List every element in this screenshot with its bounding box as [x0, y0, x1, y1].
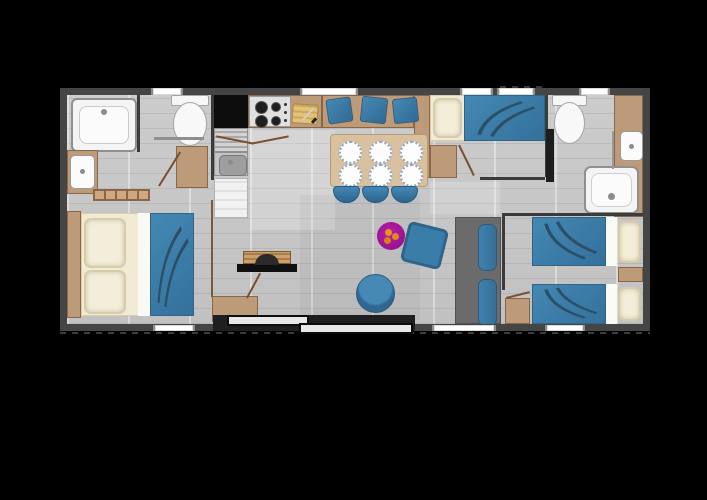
duvet-pattern	[533, 218, 605, 265]
rug-pattern	[385, 229, 392, 236]
burner	[271, 116, 281, 126]
twin-bed-duvet	[532, 284, 606, 324]
single-bed-duvet	[464, 95, 545, 141]
shower-tray	[584, 166, 639, 214]
sofa-cushion	[392, 97, 419, 124]
window-bottom-2	[432, 325, 496, 331]
double-bed-duvet	[150, 213, 194, 316]
basin-drain	[80, 169, 85, 174]
sofa-unit	[455, 217, 501, 324]
plate	[369, 141, 392, 164]
pillow	[84, 270, 126, 314]
toilet2-bowl	[554, 102, 585, 144]
duvet-pattern	[151, 214, 193, 315]
basin2-drain	[629, 144, 634, 149]
hob-knob	[284, 103, 287, 106]
dining-table	[330, 134, 428, 187]
wall-master-kitchen	[211, 95, 214, 180]
between-beds-shelf	[618, 267, 643, 282]
twin-bed-duvet	[532, 217, 606, 266]
window-bottom-3	[545, 325, 585, 331]
window-top-2	[300, 88, 358, 95]
round-pouf	[356, 274, 395, 313]
sofa-cushion	[360, 96, 389, 125]
pillow	[618, 221, 641, 263]
burner	[255, 115, 268, 128]
pillow	[433, 98, 462, 138]
hob	[249, 96, 291, 127]
bathtub	[71, 98, 137, 152]
sink-drain	[228, 160, 233, 165]
bathtub-drain	[101, 109, 107, 115]
tv-unit	[237, 264, 297, 272]
wall-west	[60, 88, 67, 331]
patio-door-pane	[227, 315, 309, 326]
window-bottom-1	[153, 325, 195, 331]
nightstand	[505, 298, 530, 324]
bed-sheet-fold	[606, 217, 617, 266]
knife-handle	[311, 117, 317, 123]
floor-plan-page: { "scene": {"kind": "floor-plan", "subje…	[0, 0, 707, 500]
plate	[339, 164, 362, 187]
shower-screen	[546, 129, 554, 182]
duvet-pattern	[533, 285, 605, 323]
plate	[400, 141, 423, 164]
wall-bedroom2-south	[480, 177, 545, 180]
wall-twin-west	[502, 216, 505, 290]
plate	[400, 164, 423, 187]
sliding-patio-door	[213, 315, 415, 331]
plate	[339, 141, 362, 164]
shower-drain	[608, 193, 615, 200]
sofa-cushion	[325, 96, 353, 124]
duvet-pattern	[465, 96, 544, 140]
counter-corner	[214, 95, 248, 128]
shower-glass	[612, 131, 614, 169]
window-top-5	[579, 88, 610, 95]
burner	[255, 101, 268, 114]
wall-bath-stub	[137, 95, 140, 152]
window-top-4	[497, 88, 535, 95]
sink-bowl	[219, 155, 247, 176]
wall-shelf	[93, 189, 150, 201]
shower-tray-inner	[591, 173, 632, 207]
pillow	[84, 218, 126, 268]
sofa-unit-cushion	[478, 279, 497, 326]
bed-sheet-fold	[606, 284, 617, 324]
wardrobe	[430, 145, 457, 178]
hob-knob	[284, 119, 287, 122]
round-rug	[377, 222, 405, 250]
thin-shelf	[154, 137, 204, 140]
wall-east	[643, 88, 650, 331]
hob-knob	[284, 111, 287, 114]
wall-bathroom-twin	[502, 213, 643, 216]
sliding-partition	[211, 200, 213, 297]
burner	[271, 102, 281, 112]
plate	[369, 164, 392, 187]
fridge	[214, 178, 248, 218]
bed-headboard	[67, 211, 81, 318]
sofa-unit-cushion	[478, 224, 497, 271]
chopping-board	[291, 103, 318, 125]
window-top-1	[151, 88, 183, 95]
window-top-3	[460, 88, 493, 95]
patio-door-pane	[299, 323, 413, 334]
pillow	[618, 287, 641, 321]
